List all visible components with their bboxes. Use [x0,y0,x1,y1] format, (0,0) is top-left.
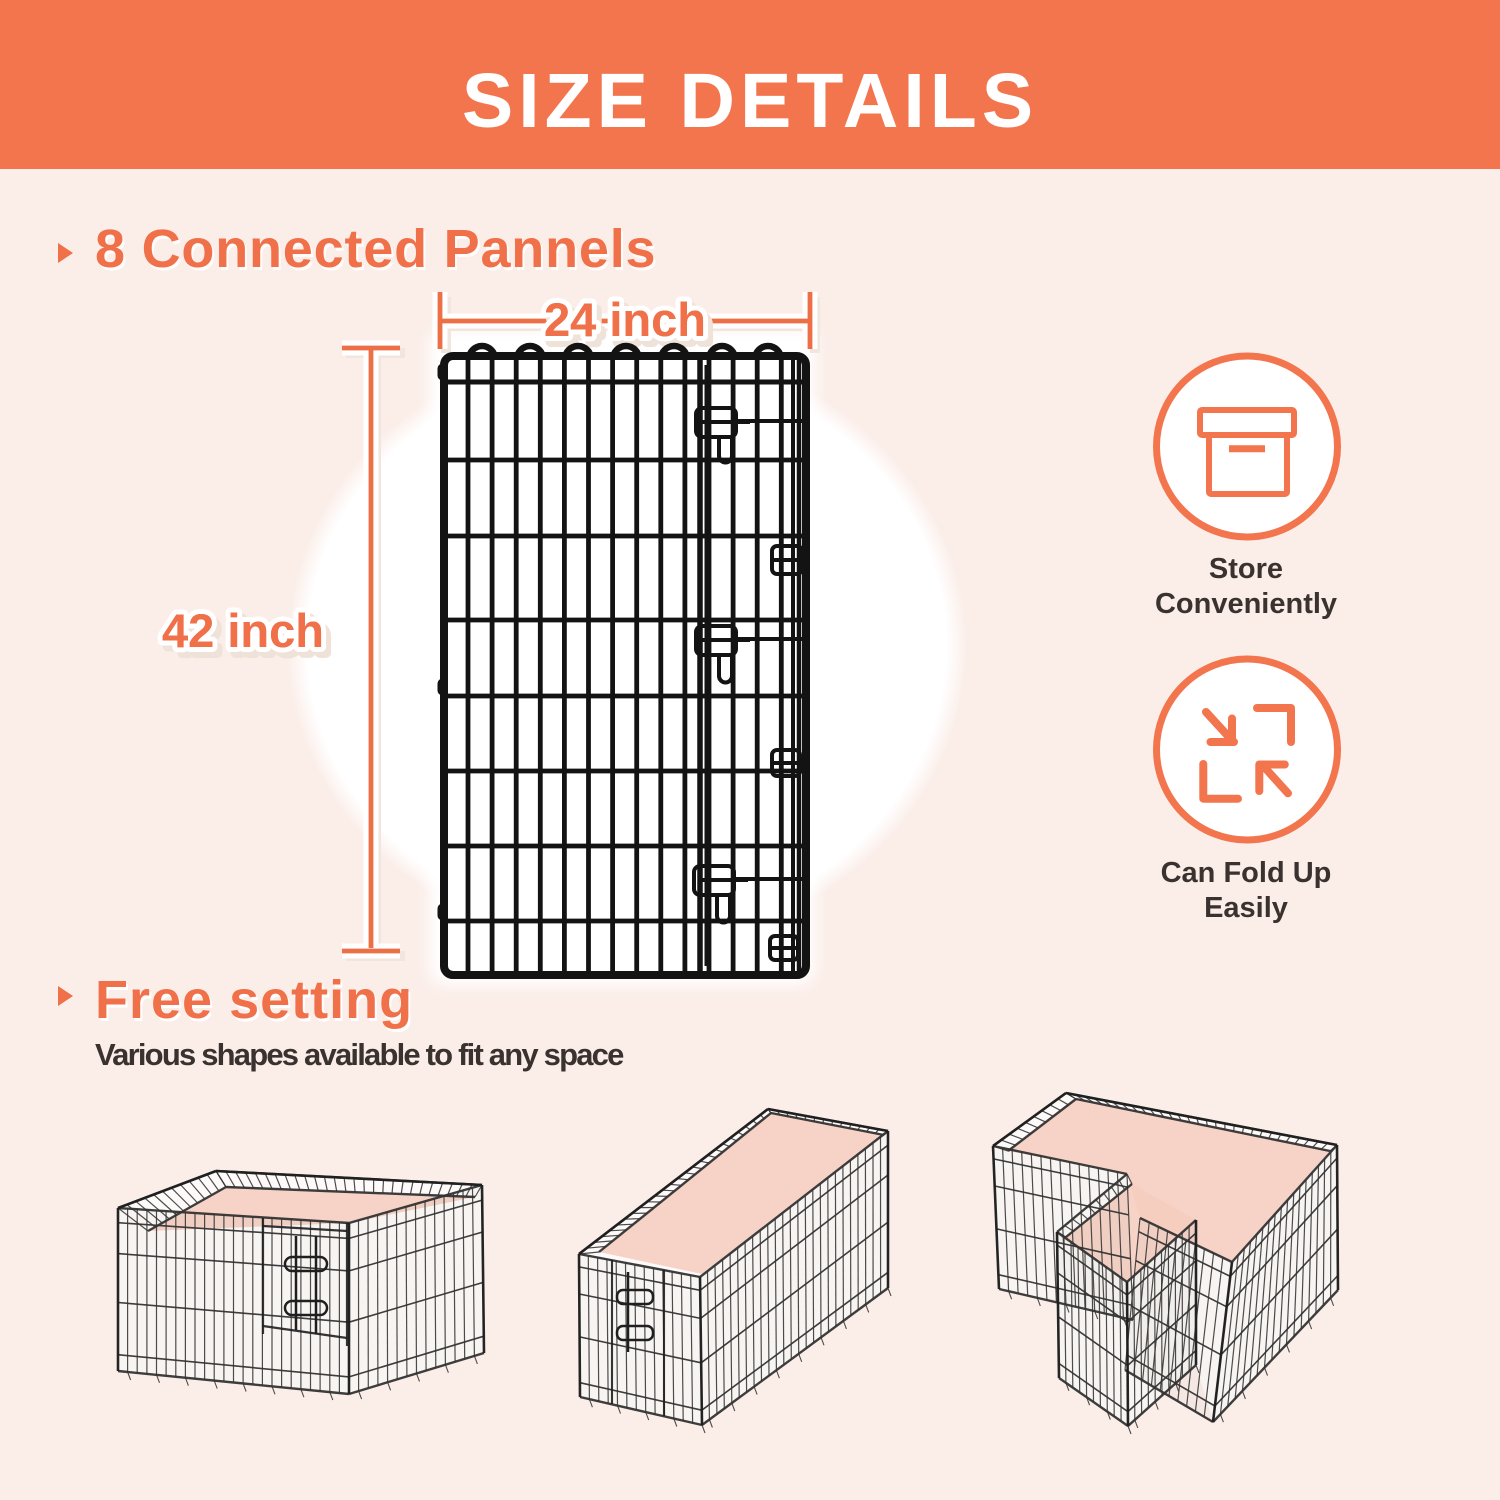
svg-text:42 inch: 42 inch [162,604,324,657]
svg-text:24 inch: 24 inch [544,293,706,346]
